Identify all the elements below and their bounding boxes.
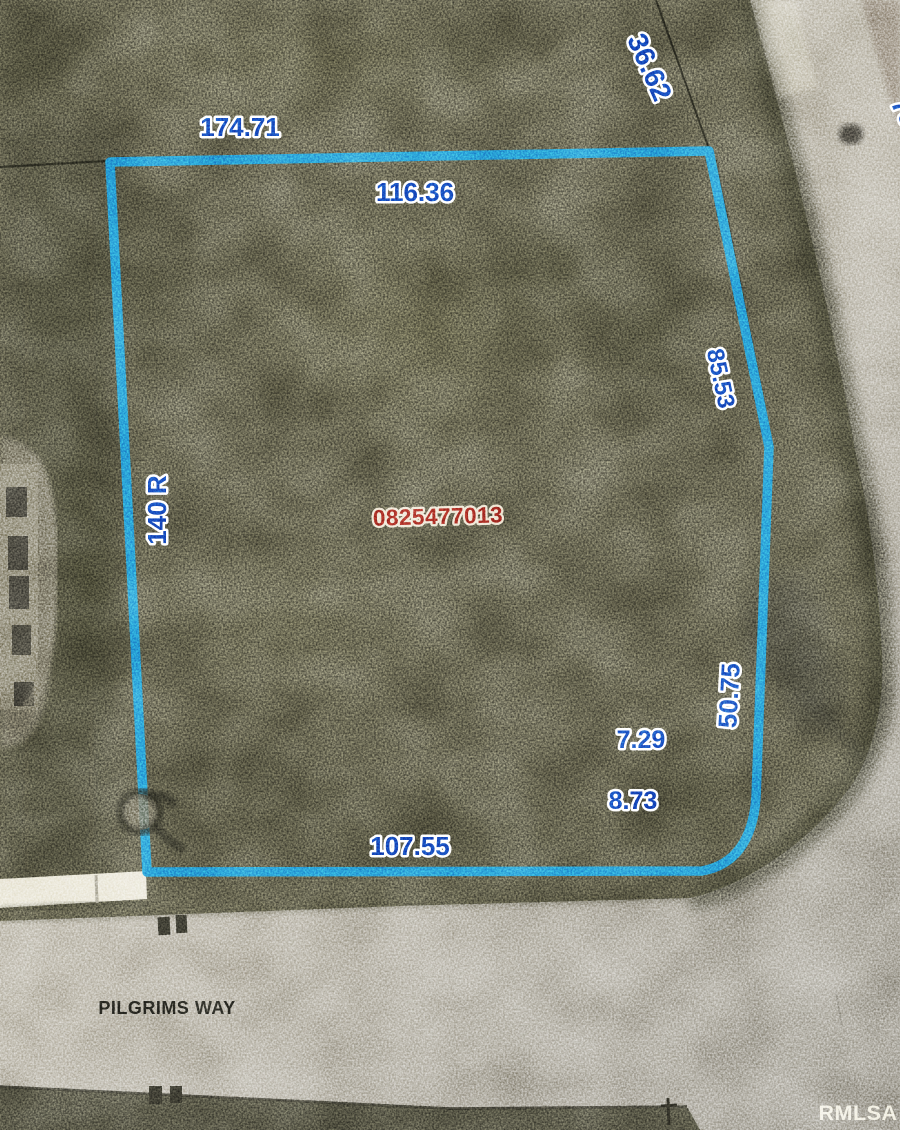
- svg-text:174.71: 174.71: [200, 112, 280, 142]
- svg-text:107.55: 107.55: [370, 831, 450, 861]
- svg-text:140 R: 140 R: [142, 475, 172, 545]
- svg-text:50.75: 50.75: [712, 662, 745, 729]
- svg-text:116.36: 116.36: [376, 177, 454, 207]
- svg-text:7.29: 7.29: [617, 726, 666, 754]
- svg-text:0825477013: 0825477013: [373, 502, 504, 530]
- svg-text:PILGRIMS WAY: PILGRIMS WAY: [98, 998, 235, 1018]
- svg-text:8.73: 8.73: [609, 787, 658, 815]
- svg-text:RMLSA: RMLSA: [819, 1101, 898, 1125]
